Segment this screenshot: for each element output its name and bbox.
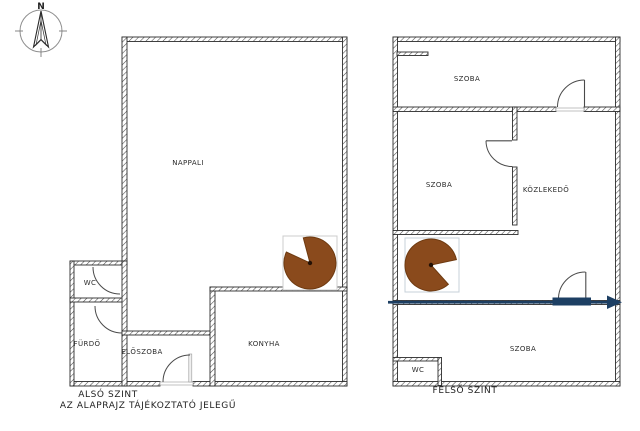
compass-icon bbox=[15, 10, 67, 57]
room-label-furdo: FÜRDŐ bbox=[74, 340, 101, 348]
room-label-szoba-bottom: SZOBA bbox=[510, 345, 536, 353]
room-label-kozlekedo: KÖZLEKEDŐ bbox=[523, 186, 569, 194]
room-label-wc-upper: WC bbox=[412, 366, 425, 374]
floorplan-canvas: N NAPPALI WC FÜRDŐ ELŐSZOBA KONYHA SZOBA… bbox=[0, 0, 640, 431]
upper-floor-title: FELSŐ SZINT bbox=[433, 386, 498, 396]
lower-floor-walls bbox=[70, 37, 347, 386]
door-swing-arc bbox=[558, 272, 585, 300]
level-split-annotation bbox=[388, 296, 622, 310]
entrance-door-leaf bbox=[189, 354, 192, 382]
upper-floor-walls bbox=[393, 37, 620, 386]
room-label-szoba-top: SZOBA bbox=[454, 75, 480, 83]
floorplan-drawing bbox=[0, 0, 640, 431]
door-swing-arc bbox=[486, 141, 513, 167]
room-label-szoba-mid: SZOBA bbox=[426, 181, 452, 189]
door-swing-arc bbox=[558, 80, 585, 107]
door-swing-arc bbox=[163, 355, 190, 382]
room-label-wc-lower: WC bbox=[84, 279, 97, 287]
lower-floor-title: ALSÓ SZINT bbox=[78, 390, 138, 400]
door-swing-arc bbox=[93, 267, 120, 294]
spiral-stair-icon-upper bbox=[405, 238, 459, 292]
floorplan-disclaimer: AZ ALAPRAJZ TÁJÉKOZTATÓ JELEGŰ bbox=[60, 401, 236, 411]
spiral-stair-icon-lower bbox=[283, 236, 337, 290]
compass-north-label: N bbox=[37, 2, 45, 12]
room-label-konyha: KONYHA bbox=[248, 340, 280, 348]
door-swing-arc bbox=[95, 306, 122, 333]
door-threshold bbox=[556, 108, 584, 111]
room-label-eloszoba: ELŐSZOBA bbox=[121, 348, 162, 356]
lower-floor-doors bbox=[93, 267, 193, 385]
room-label-nappali: NAPPALI bbox=[172, 159, 204, 167]
entrance-threshold bbox=[160, 382, 193, 385]
